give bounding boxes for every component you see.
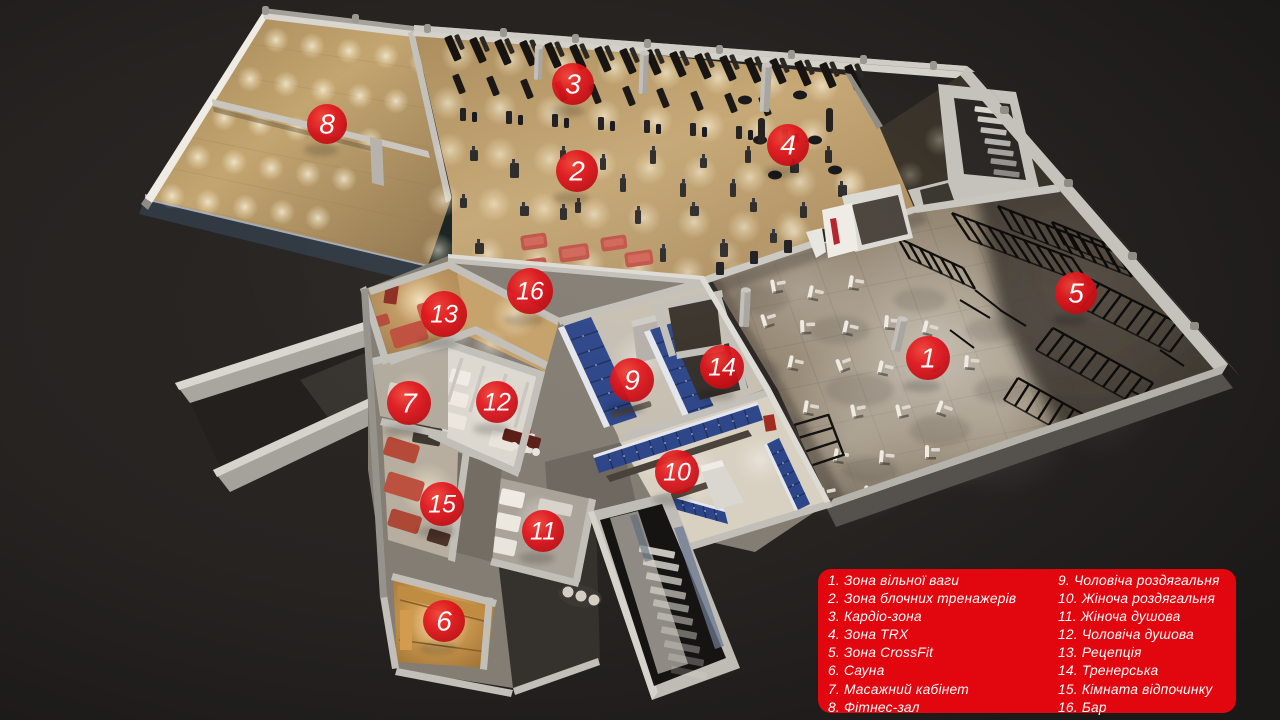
svg-text:15: 15 (428, 491, 456, 519)
svg-text:16: 16 (516, 278, 544, 306)
svg-text:10: 10 (663, 459, 691, 487)
svg-text:1: 1 (920, 343, 936, 374)
svg-text:13: 13 (430, 301, 458, 329)
svg-text:9: 9 (624, 365, 640, 396)
svg-text:5: 5 (1068, 278, 1084, 309)
svg-text:7: 7 (401, 388, 418, 419)
svg-text:6: 6 (436, 606, 452, 637)
svg-text:12: 12 (483, 389, 511, 417)
svg-text:4: 4 (780, 130, 796, 161)
svg-text:8: 8 (319, 109, 335, 140)
svg-text:11: 11 (530, 518, 556, 546)
svg-text:3: 3 (565, 69, 581, 100)
svg-text:2: 2 (568, 156, 585, 187)
svg-text:14: 14 (708, 354, 736, 382)
